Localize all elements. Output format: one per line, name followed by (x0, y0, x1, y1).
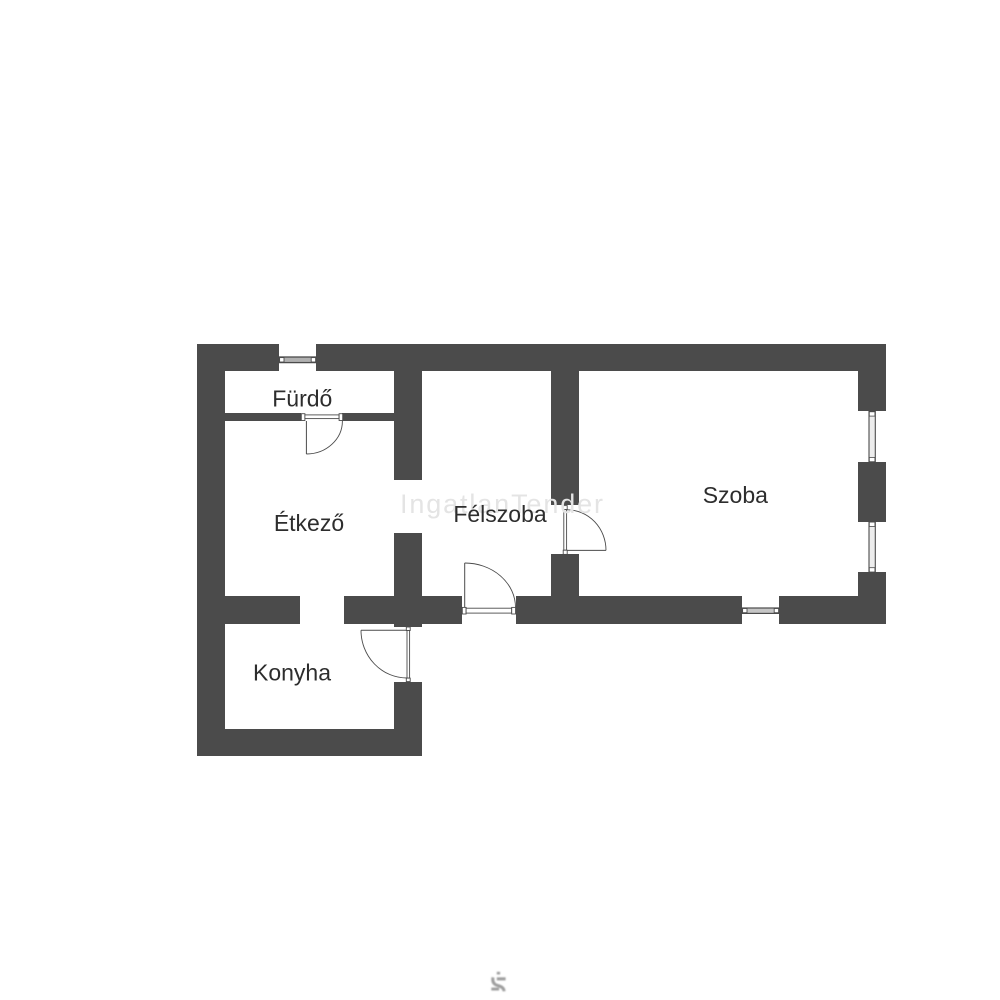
svg-text:Szoba: Szoba (703, 482, 768, 508)
svg-text:Fürdő: Fürdő (272, 386, 332, 412)
svg-text:Félszoba: Félszoba (453, 501, 547, 527)
svg-text:Étkező: Étkező (274, 510, 344, 536)
svg-text:Konyha: Konyha (253, 660, 331, 686)
